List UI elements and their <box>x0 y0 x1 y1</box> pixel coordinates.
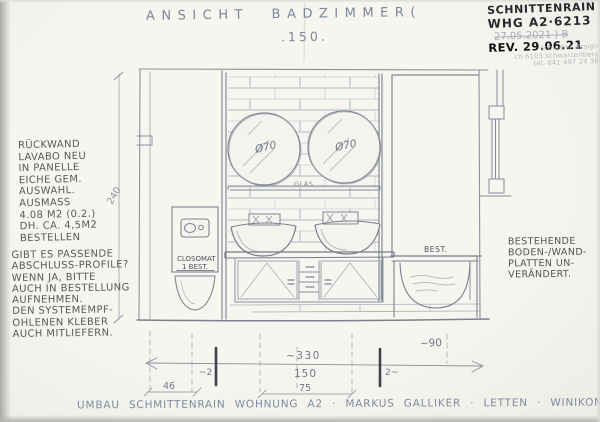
vanity-cabinet <box>235 258 383 302</box>
door-swing-left <box>241 263 294 297</box>
note-rear-wall-panel: RÜCKWAND LAVABO NEU IN PANELLE EICHE GEM… <box>18 138 138 245</box>
closomat-qty-label: 1 BEST. <box>182 263 208 271</box>
note-line: BESTELLEN <box>20 231 138 245</box>
scan-edge-right <box>596 0 600 422</box>
dim-mid-zone: 75 <box>299 383 311 394</box>
door-swing-right <box>324 263 377 297</box>
handle-dashes <box>288 267 331 287</box>
glass-label: GLAS <box>294 180 313 188</box>
note-line: AUCH MITLIEFERN. <box>12 327 152 340</box>
note-existing-tiles: BESTEHENDE BODEN-/WAND- PLATTEN UN- VERÄ… <box>508 236 600 281</box>
scan-edge-bottom <box>0 415 600 422</box>
main-dim-line <box>146 363 483 366</box>
note-line: VERÄNDERT. <box>508 269 600 281</box>
scan-edge-top <box>0 0 600 3</box>
door-profile <box>480 70 511 196</box>
dim-wall-left: ~2 <box>199 368 212 378</box>
drawing-scale: .150. <box>281 29 328 45</box>
scan-edge-left <box>0 0 11 422</box>
revision-block: SCHNITTENRAIN WHG A2·6213 27.05.2021 ) B… <box>487 0 600 70</box>
note-line: BESTEHENDE <box>508 236 600 248</box>
dim-right-zone: ~90 <box>420 337 443 350</box>
bathtub <box>391 256 481 317</box>
closomat-label: CLOSOMAT <box>177 255 216 263</box>
note-line: PLATTEN UN- <box>508 258 600 270</box>
dim-wall-right: 2~ <box>385 368 398 378</box>
tub-label: BEST. <box>424 245 448 254</box>
note-profiles-order: GIBT ES PASSENDE ABSCHLUSS-PROFILE? WENN… <box>11 248 152 340</box>
dim-left-zone: 46 <box>163 381 175 392</box>
dim-inner: 150 <box>294 368 317 380</box>
dim-overall: ~330 <box>286 350 321 362</box>
note-line: BODEN-/WAND- <box>508 247 600 259</box>
water-lines <box>411 276 455 292</box>
scanned-sketch-page: Ø70 Ø70 GLAS CLOSOMAT 1 BEST. BEST. 240 … <box>0 0 600 422</box>
